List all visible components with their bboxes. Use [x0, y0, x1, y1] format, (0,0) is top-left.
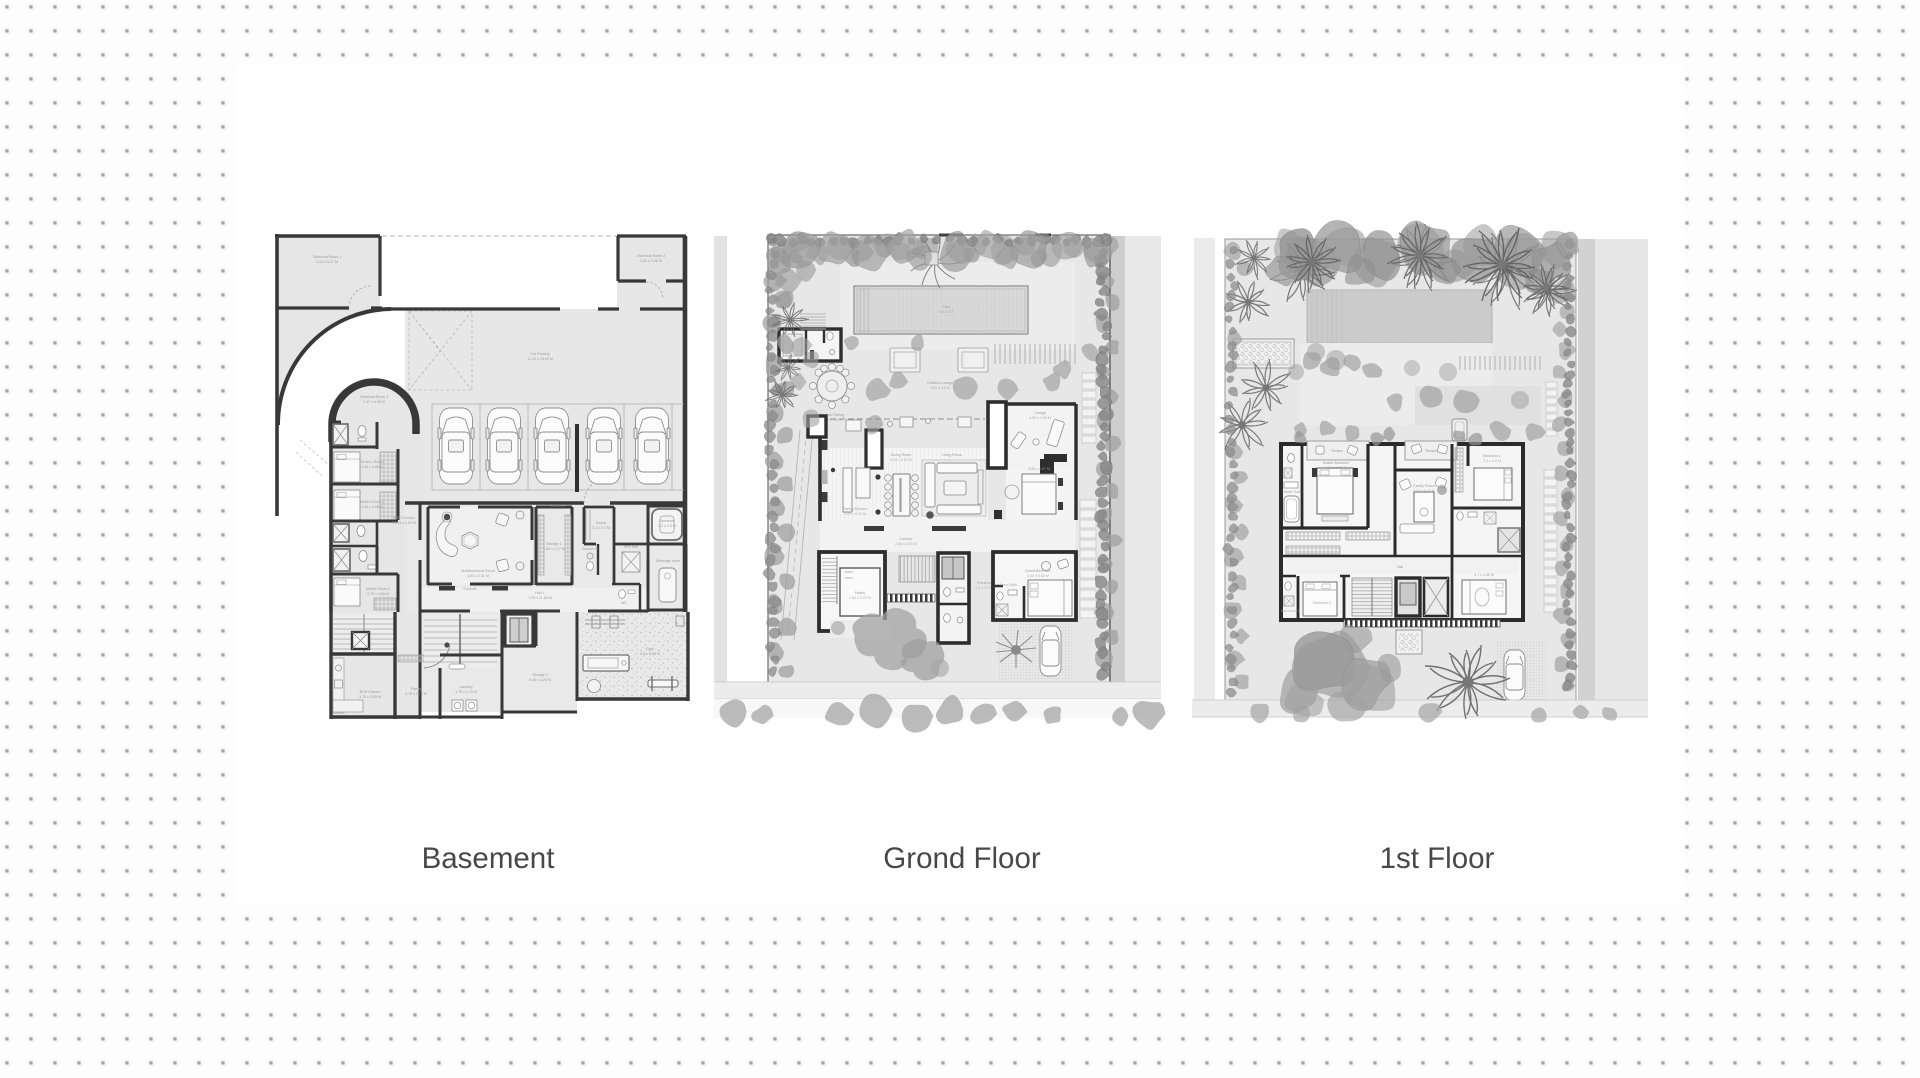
svg-text:2.70 x 3.50 M: 2.70 x 3.50 M [367, 592, 389, 596]
svg-text:Grond Floor: Grond Floor [883, 842, 1041, 875]
svg-text:Gym: Gym [646, 647, 654, 651]
svg-text:Multifunctional Room: Multifunctional Room [461, 569, 495, 573]
svg-text:2.2 x 2.6 M: 2.2 x 2.6 M [658, 524, 676, 528]
svg-text:Maid's Room 2: Maid's Room 2 [366, 587, 390, 591]
svg-text:2.1 x 2.2 M: 2.1 x 2.2 M [592, 526, 610, 530]
svg-text:Technical Room 3: Technical Room 3 [360, 395, 389, 399]
svg-text:Storage 2: Storage 2 [532, 673, 548, 677]
svg-text:Hall 1: Hall 1 [535, 591, 544, 595]
svg-text:3.3 x 4.6 M: 3.3 x 4.6 M [1483, 459, 1501, 463]
svg-text:Pantry: Pantry [411, 687, 422, 691]
svg-text:Technical Room 1: Technical Room 1 [313, 255, 342, 259]
svg-text:Lounge: Lounge [1034, 411, 1046, 415]
svg-text:3.75 x 2.74 M: 3.75 x 2.74 M [405, 692, 427, 696]
svg-text:Laundry: Laundry [460, 685, 473, 689]
svg-text:5.95 x 4.25 M: 5.95 x 4.25 M [529, 678, 551, 682]
svg-text:5 x 10 M: 5 x 10 M [939, 310, 953, 314]
svg-text:Living Room: Living Room [942, 453, 962, 457]
svg-text:Master Bedroom: Master Bedroom [1323, 461, 1350, 465]
svg-text:Bedroom 2: Bedroom 2 [1313, 601, 1331, 605]
svg-text:Storage 1: Storage 1 [546, 542, 562, 546]
svg-text:4.80 x 5.50 M: 4.80 x 5.50 M [1325, 466, 1347, 470]
svg-text:2.4 x 3.9 M: 2.4 x 3.9 M [975, 586, 993, 590]
svg-text:3.00 x 3.85 M: 3.00 x 3.85 M [361, 465, 383, 469]
svg-text:15.53 x 1.22 M: 15.53 x 1.22 M [392, 521, 416, 525]
svg-text:Hammam: Hammam [659, 519, 675, 523]
svg-text:4.65 x 4.0 M: 4.65 x 4.0 M [930, 386, 950, 390]
svg-text:Dining Room: Dining Room [891, 453, 912, 457]
svg-text:12.42 x 15.93 M: 12.42 x 15.93 M [527, 357, 553, 361]
svg-text:Pantry: Pantry [855, 591, 866, 595]
svg-text:Car Parking: Car Parking [531, 352, 550, 356]
svg-text:2.62 x 3.06 M: 2.62 x 3.06 M [640, 259, 662, 263]
svg-text:Pool: Pool [942, 305, 949, 309]
svg-text:Terrace: Terrace [1331, 449, 1343, 453]
svg-text:2.05 x 3.20 M: 2.05 x 3.20 M [849, 596, 871, 600]
svg-text:BOH Corridor: BOH Corridor [393, 516, 416, 520]
svg-text:WC: WC [621, 601, 627, 605]
svg-text:4.00 x 5.00 M: 4.00 x 5.00 M [1027, 574, 1049, 578]
svg-text:Family Room: Family Room [1413, 484, 1434, 488]
svg-text:Console: Console [463, 587, 476, 591]
svg-text:Technical Room 2: Technical Room 2 [637, 254, 666, 258]
svg-text:3.79 x 3.65 M: 3.79 x 3.65 M [359, 695, 381, 699]
svg-text:Terrace: Terrace [1425, 449, 1437, 453]
svg-text:1st Floor: 1st Floor [1380, 842, 1495, 875]
svg-text:4.24 x 5.27 M: 4.24 x 5.27 M [316, 260, 338, 264]
svg-text:4.00 x 6.00 M: 4.00 x 6.00 M [890, 458, 912, 462]
svg-text:Bedroom 1: Bedroom 1 [1483, 454, 1501, 458]
svg-text:Guest Bedroom: Guest Bedroom [1025, 569, 1050, 573]
svg-text:Bathroom 2: Bathroom 2 [1281, 609, 1300, 613]
svg-text:4.56 x 2.17 M: 4.56 x 2.17 M [543, 547, 565, 551]
svg-text:3.20 x 3.65 M: 3.20 x 3.65 M [361, 505, 383, 509]
svg-text:4.5 x 8.50 M: 4.5 x 8.50 M [640, 652, 660, 656]
svg-text:BOH Kitchen: BOH Kitchen [360, 690, 381, 694]
svg-text:2.80 x 5.00 M: 2.80 x 5.00 M [895, 542, 917, 546]
svg-text:4.05 x 4.05 M: 4.05 x 4.05 M [1029, 416, 1051, 420]
svg-text:Master Bath: Master Bath [1282, 490, 1301, 494]
svg-text:Sauna: Sauna [596, 521, 606, 525]
svg-text:Shower R: Shower R [582, 547, 598, 551]
svg-text:Guest Bath: Guest Bath [999, 583, 1017, 587]
svg-text:Hall: Hall [1397, 565, 1403, 569]
svg-text:3.20 x 4.60 M: 3.20 x 4.60 M [1413, 489, 1435, 493]
svg-text:3.7 x 4.45 M: 3.7 x 4.45 M [1474, 573, 1494, 577]
svg-text:Basement: Basement [422, 842, 555, 875]
svg-text:SPA Hall: SPA Hall [624, 545, 638, 549]
svg-text:Outdoor Lounge: Outdoor Lounge [927, 381, 953, 385]
svg-text:9 x 5.0 M: 9 x 5.0 M [551, 504, 566, 508]
svg-text:Entrance: Entrance [977, 581, 991, 585]
svg-text:2.47 x 4.30 M: 2.47 x 4.30 M [363, 400, 385, 404]
svg-text:Driver's Room: Driver's Room [361, 460, 384, 464]
svg-text:4.63 x 2.41 M: 4.63 x 2.41 M [467, 574, 489, 578]
svg-text:3.05 x 4.07 M: 3.05 x 4.07 M [1028, 467, 1050, 471]
svg-text:Family Kitchen: Family Kitchen [843, 507, 867, 511]
svg-text:Maid's Room 1: Maid's Room 1 [360, 500, 384, 504]
svg-text:Corridor: Corridor [900, 537, 914, 541]
svg-text:Massage room: Massage room [656, 559, 680, 563]
svg-text:3.60 x 6.20 M: 3.60 x 6.20 M [844, 512, 866, 516]
svg-text:1.75 x 4.10 M: 1.75 x 4.10 M [455, 690, 477, 694]
svg-text:7.09 x 11.65 M: 7.09 x 11.65 M [528, 596, 552, 600]
